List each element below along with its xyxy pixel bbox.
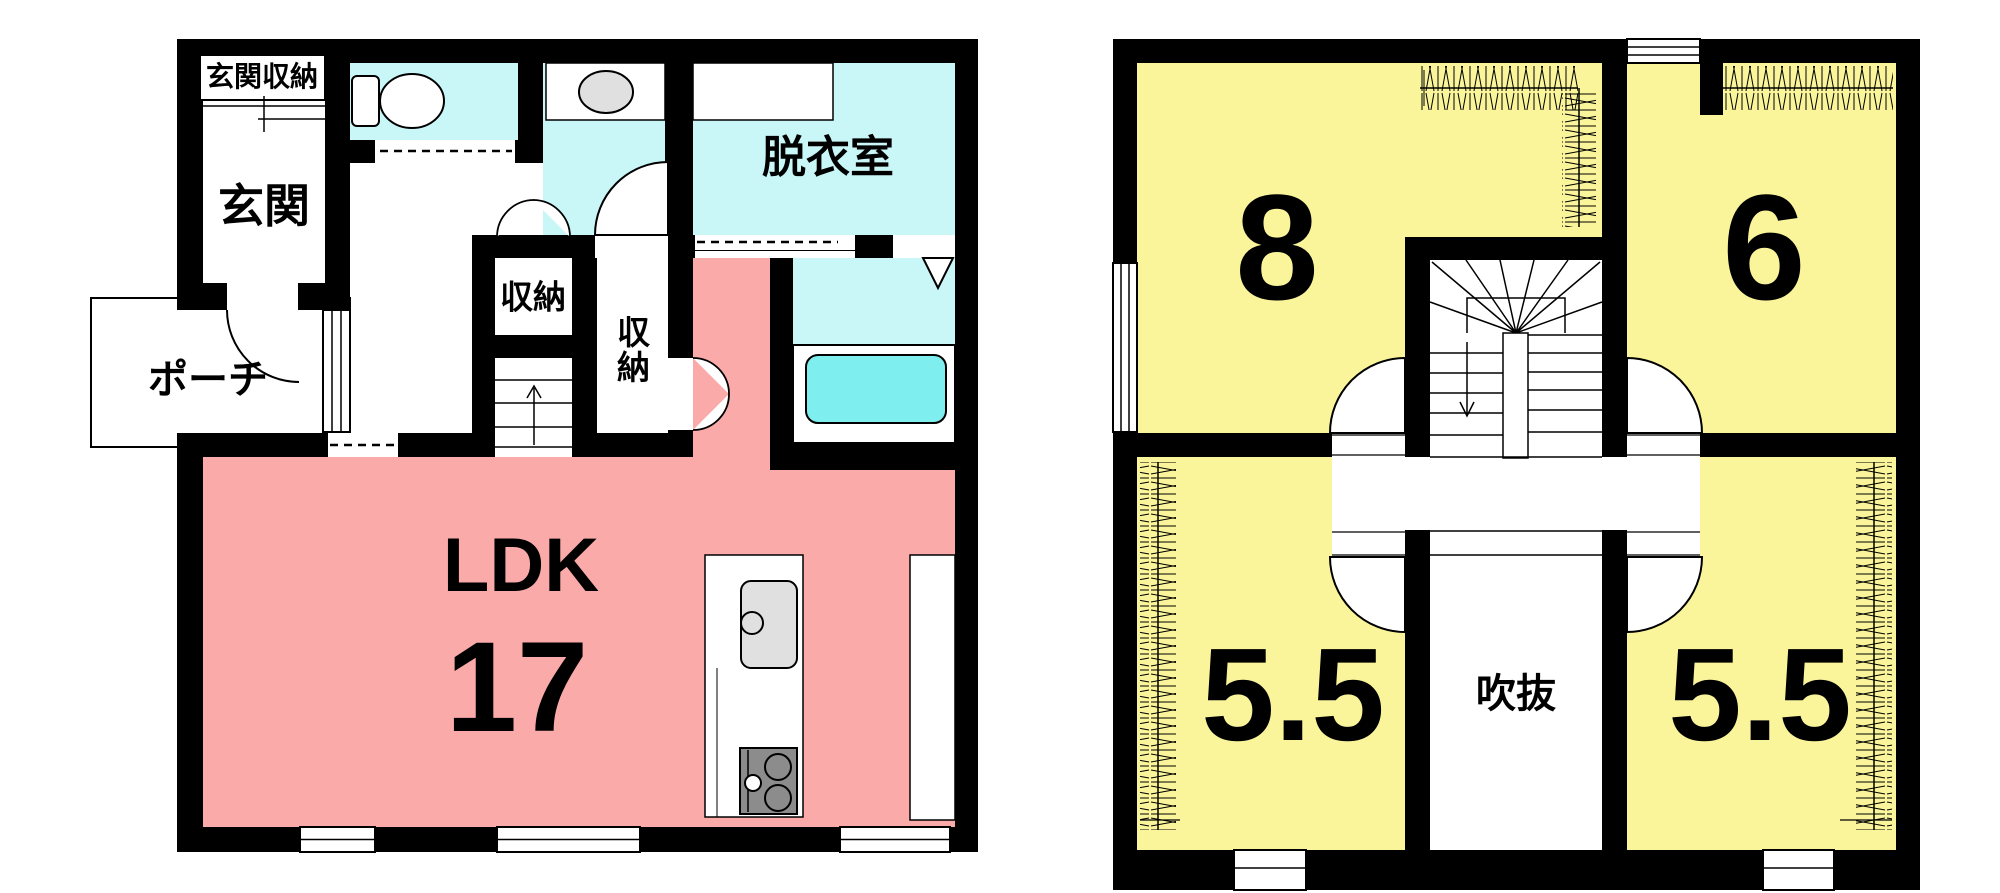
stove-icon <box>740 748 797 814</box>
kitchen-sink-icon <box>741 581 797 668</box>
vanity-sink-icon <box>546 63 665 120</box>
label-ldk: LDK <box>443 528 599 604</box>
kitchen-cabinet <box>910 555 955 820</box>
label-porch: ポーチ <box>148 360 268 400</box>
bathtub-icon <box>793 345 955 443</box>
label-room-55-right: 5.5 <box>1668 629 1852 761</box>
floorplan-canvas: 玄関収納 玄関 ポーチ 脱衣室 収納 収納 LDK 17 8 6 5.5 5.5… <box>0 0 2000 893</box>
label-room-55-left: 5.5 <box>1201 629 1385 761</box>
dressing-counter <box>693 63 833 120</box>
stairs-floor1 <box>495 380 572 447</box>
label-storage-1: 収納 <box>500 281 566 314</box>
toilet-icon <box>352 74 444 128</box>
label-entrance-storage: 玄関収納 <box>206 63 318 91</box>
label-storage-2: 収納 <box>615 315 648 385</box>
label-entrance: 玄関 <box>218 183 310 229</box>
label-room-6: 6 <box>1722 172 1805 322</box>
label-dressing-room: 脱衣室 <box>762 136 894 180</box>
label-room-8: 8 <box>1235 172 1318 322</box>
label-ldk-size: 17 <box>446 624 588 752</box>
label-atrium: 吹抜 <box>1476 674 1556 714</box>
